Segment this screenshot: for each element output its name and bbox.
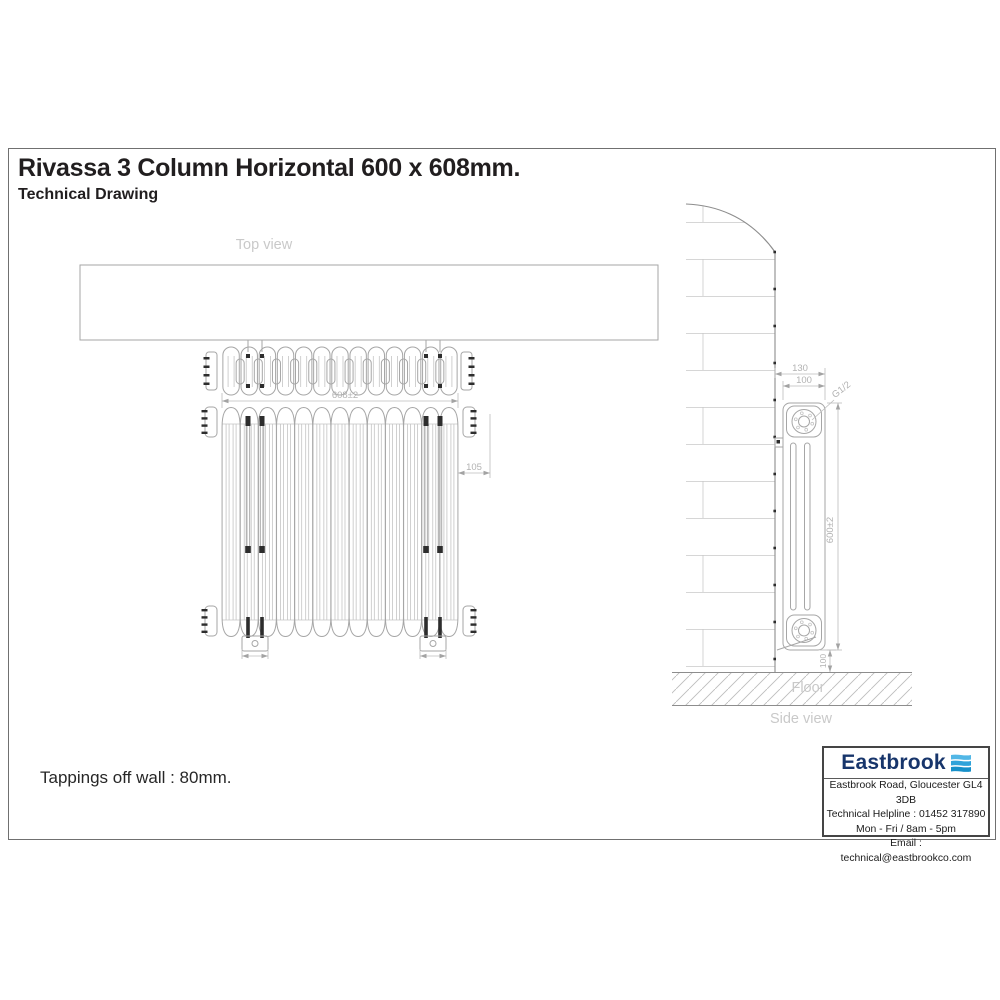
dim-height: 600±2 bbox=[825, 517, 836, 543]
dim-floor-clearance: 100 bbox=[818, 654, 828, 668]
eastbrook-logo: Eastbrook bbox=[824, 748, 988, 779]
dim-wall-to-front: 130 bbox=[792, 363, 808, 374]
dim-depth: 100 bbox=[796, 375, 812, 386]
logo-email: Email : technical@eastbrookco.com bbox=[824, 837, 988, 866]
tappings-note: Tappings off wall : 80mm. bbox=[40, 768, 232, 788]
eastbrook-logo-text: Eastbrook bbox=[841, 751, 946, 775]
side-view bbox=[672, 204, 912, 706]
radiator-top-view bbox=[204, 340, 475, 395]
dim-end-offset: 105 bbox=[466, 462, 482, 473]
dim-thread: G1/2 bbox=[830, 379, 853, 400]
logo-hours: Mon - Fri / 8am - 5pm bbox=[824, 823, 988, 838]
eastbrook-info-box: Eastbrook Eastbrook Road, Gloucester GL4… bbox=[822, 746, 990, 837]
side-view-label: Side view bbox=[770, 711, 833, 727]
logo-address: Eastbrook Road, Gloucester GL4 3DB bbox=[824, 779, 988, 808]
page: Rivassa 3 Column Horizontal 600 x 608mm.… bbox=[0, 0, 1000, 1000]
floor-label: Floor bbox=[791, 680, 824, 696]
top-view-wall bbox=[80, 265, 658, 340]
top-view-label: Top view bbox=[236, 237, 293, 253]
eastbrook-logo-icon bbox=[951, 754, 971, 772]
logo-helpline: Technical Helpline : 01452 317890 bbox=[824, 808, 988, 823]
dim-width: 608±2 bbox=[332, 390, 358, 401]
radiator-front-view bbox=[202, 407, 477, 659]
eastbrook-contact: Eastbrook Road, Gloucester GL4 3DB Techn… bbox=[824, 779, 988, 867]
